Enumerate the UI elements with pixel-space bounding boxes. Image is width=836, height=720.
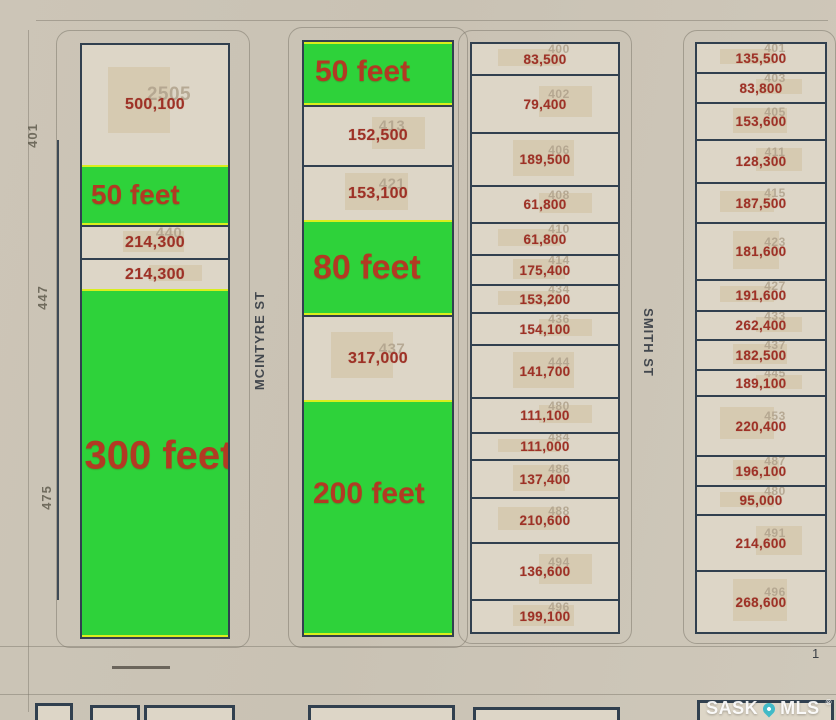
lot-assessed-value: 262,400	[736, 318, 787, 333]
bottom-partial-lot	[308, 705, 455, 720]
lot-assessed-value: 137,400	[520, 472, 571, 487]
lot-assessed-value: 191,600	[736, 288, 787, 303]
lot-row: 421153,100	[304, 165, 452, 220]
lot-assessed-value: 153,100	[348, 185, 408, 203]
plat-map: 401 447 475 MCINTYRE ST SMITH ST 2505500…	[0, 0, 836, 720]
bottom-partial-lot	[90, 705, 140, 720]
lot-assessed-value: 181,600	[736, 244, 787, 259]
lot-row: 415187,500	[697, 182, 825, 222]
lot-row: 487196,100	[697, 455, 825, 485]
lot-row: 486137,400	[472, 459, 618, 497]
highlighted-lot: 50 feet	[302, 42, 454, 105]
lot-assessed-value: 83,800	[739, 81, 782, 96]
lot-assessed-value: 136,600	[520, 564, 571, 579]
watermark-text-left: SASK	[706, 698, 758, 719]
lot-assessed-value: 199,100	[520, 609, 571, 624]
lot-assessed-value: 135,500	[736, 51, 787, 66]
lot-assessed-value: 196,100	[736, 464, 787, 479]
top-street-curb	[36, 20, 828, 21]
lot-row: 401135,500	[697, 44, 825, 72]
highlight-dimension-label: 50 feet	[315, 55, 410, 89]
lot-assessed-value: 141,700	[520, 364, 571, 379]
parcel-label-401: 401	[25, 123, 40, 148]
lot-row: 48095,000	[697, 485, 825, 514]
lot-assessed-value: 83,500	[523, 52, 566, 67]
lot-row: 423181,600	[697, 222, 825, 279]
highlight-dimension-label: 200 feet	[313, 477, 425, 511]
smith-street-name: SMITH ST	[641, 308, 656, 377]
lot-row: 40383,800	[697, 72, 825, 102]
lot-row: 433262,400	[697, 310, 825, 339]
lot-row: 413152,500	[304, 105, 452, 165]
lot-row: 2505500,100	[82, 45, 228, 165]
lot-assessed-value: 153,600	[736, 114, 787, 129]
lot-row: 427191,600	[697, 279, 825, 310]
lot-assessed-value: 317,000	[348, 350, 408, 368]
parcel-label-475: 475	[39, 485, 54, 510]
lot-row: 494136,600	[472, 542, 618, 599]
lot-row: 444141,700	[472, 344, 618, 397]
lot-assessed-value: 182,500	[736, 348, 787, 363]
lot-row: 406189,500	[472, 132, 618, 185]
lot-assessed-value: 152,500	[348, 127, 408, 145]
lot-assessed-value: 220,400	[736, 419, 787, 434]
lot-assessed-value: 214,600	[736, 536, 787, 551]
lot-row: 434153,200	[472, 284, 618, 312]
lot-row: 496199,100	[472, 599, 618, 632]
lot-row: 40861,800	[472, 185, 618, 222]
lot-row: 453220,400	[697, 395, 825, 455]
lot-assessed-value: 79,400	[523, 97, 566, 112]
lot-row: 480111,100	[472, 397, 618, 432]
sask-mls-watermark: SASK MLS ®	[706, 698, 832, 719]
street-dash-mark	[112, 666, 170, 669]
lot-row: 437182,500	[697, 339, 825, 369]
west-block: 2505500,10050 feet440214,300214,300300 f…	[80, 43, 230, 639]
bottom-partial-lot	[473, 707, 620, 720]
highlight-dimension-label: 50 feet	[91, 179, 180, 211]
highlight-dimension-label: 80 feet	[313, 248, 421, 287]
lot-assessed-value: 210,600	[520, 513, 571, 528]
smith-street-label: SMITH ST	[618, 283, 678, 401]
lot-assessed-value: 95,000	[739, 493, 782, 508]
lot-assessed-value: 175,400	[520, 263, 571, 278]
bottom-partial-lot	[144, 705, 235, 720]
parcel-label-447: 447	[35, 285, 50, 310]
lot-assessed-value: 61,800	[523, 197, 566, 212]
lot-assessed-value: 61,800	[523, 232, 566, 247]
lot-assessed-value: 189,100	[736, 376, 787, 391]
lot-row: 496268,600	[697, 570, 825, 632]
lot-assessed-value: 268,600	[736, 595, 787, 610]
lot-row: 214,300	[82, 258, 228, 289]
lot-assessed-value: 154,100	[520, 322, 571, 337]
lot-row: 436154,100	[472, 312, 618, 344]
lot-row: 437317,000	[304, 315, 452, 400]
lot-assessed-value: 187,500	[736, 196, 787, 211]
lot-row: 440214,300	[82, 225, 228, 258]
lot-row: 411128,300	[697, 139, 825, 182]
lot-row: 405153,600	[697, 102, 825, 139]
lot-assessed-value: 500,100	[125, 96, 185, 114]
lot-assessed-value: 214,300	[125, 234, 185, 252]
mcintyre-street-name: MCINTYRE ST	[253, 290, 268, 389]
registered-mark: ®	[826, 698, 832, 707]
lot-assessed-value: 111,100	[520, 408, 569, 423]
lot-assessed-value: 214,300	[125, 266, 185, 284]
lot-row: 41061,800	[472, 222, 618, 254]
mcintyre-east-block: 40083,50040279,400406189,50040861,800410…	[470, 42, 620, 634]
highlighted-lot: 300 feet	[80, 289, 230, 637]
highlighted-lot: 50 feet	[80, 165, 230, 225]
lot-assessed-value: 128,300	[736, 154, 787, 169]
watermark-text-right: MLS	[780, 698, 820, 719]
lot-row: 40083,500	[472, 44, 618, 74]
lot-row: 445189,100	[697, 369, 825, 395]
lot-row: 414175,400	[472, 254, 618, 284]
lot-row: 488210,600	[472, 497, 618, 542]
highlighted-lot: 80 feet	[302, 220, 454, 315]
lot-assessed-value: 153,200	[520, 292, 571, 307]
mcintyre-street-label: MCINTYRE ST	[228, 280, 292, 400]
map-pin-icon	[761, 700, 778, 717]
smith-east-block: 401135,50040383,800405153,600411128,3004…	[695, 42, 827, 634]
lot-assessed-value: 189,500	[520, 152, 571, 167]
lot-row: 491214,600	[697, 514, 825, 570]
sheet-number: 1	[812, 646, 819, 661]
bottom-street-curb-lower	[0, 694, 836, 695]
lot-assessed-value: 111,000	[520, 439, 569, 454]
lot-row: 484111,000	[472, 432, 618, 459]
west-survey-line	[57, 140, 59, 600]
bottom-partial-lot	[35, 703, 73, 720]
lot-row: 40279,400	[472, 74, 618, 132]
highlight-dimension-label: 300 feet	[85, 434, 230, 479]
highlighted-lot: 200 feet	[302, 400, 454, 635]
mcintyre-west-block: 50 feet413152,500421153,10080 feet437317…	[302, 40, 454, 637]
